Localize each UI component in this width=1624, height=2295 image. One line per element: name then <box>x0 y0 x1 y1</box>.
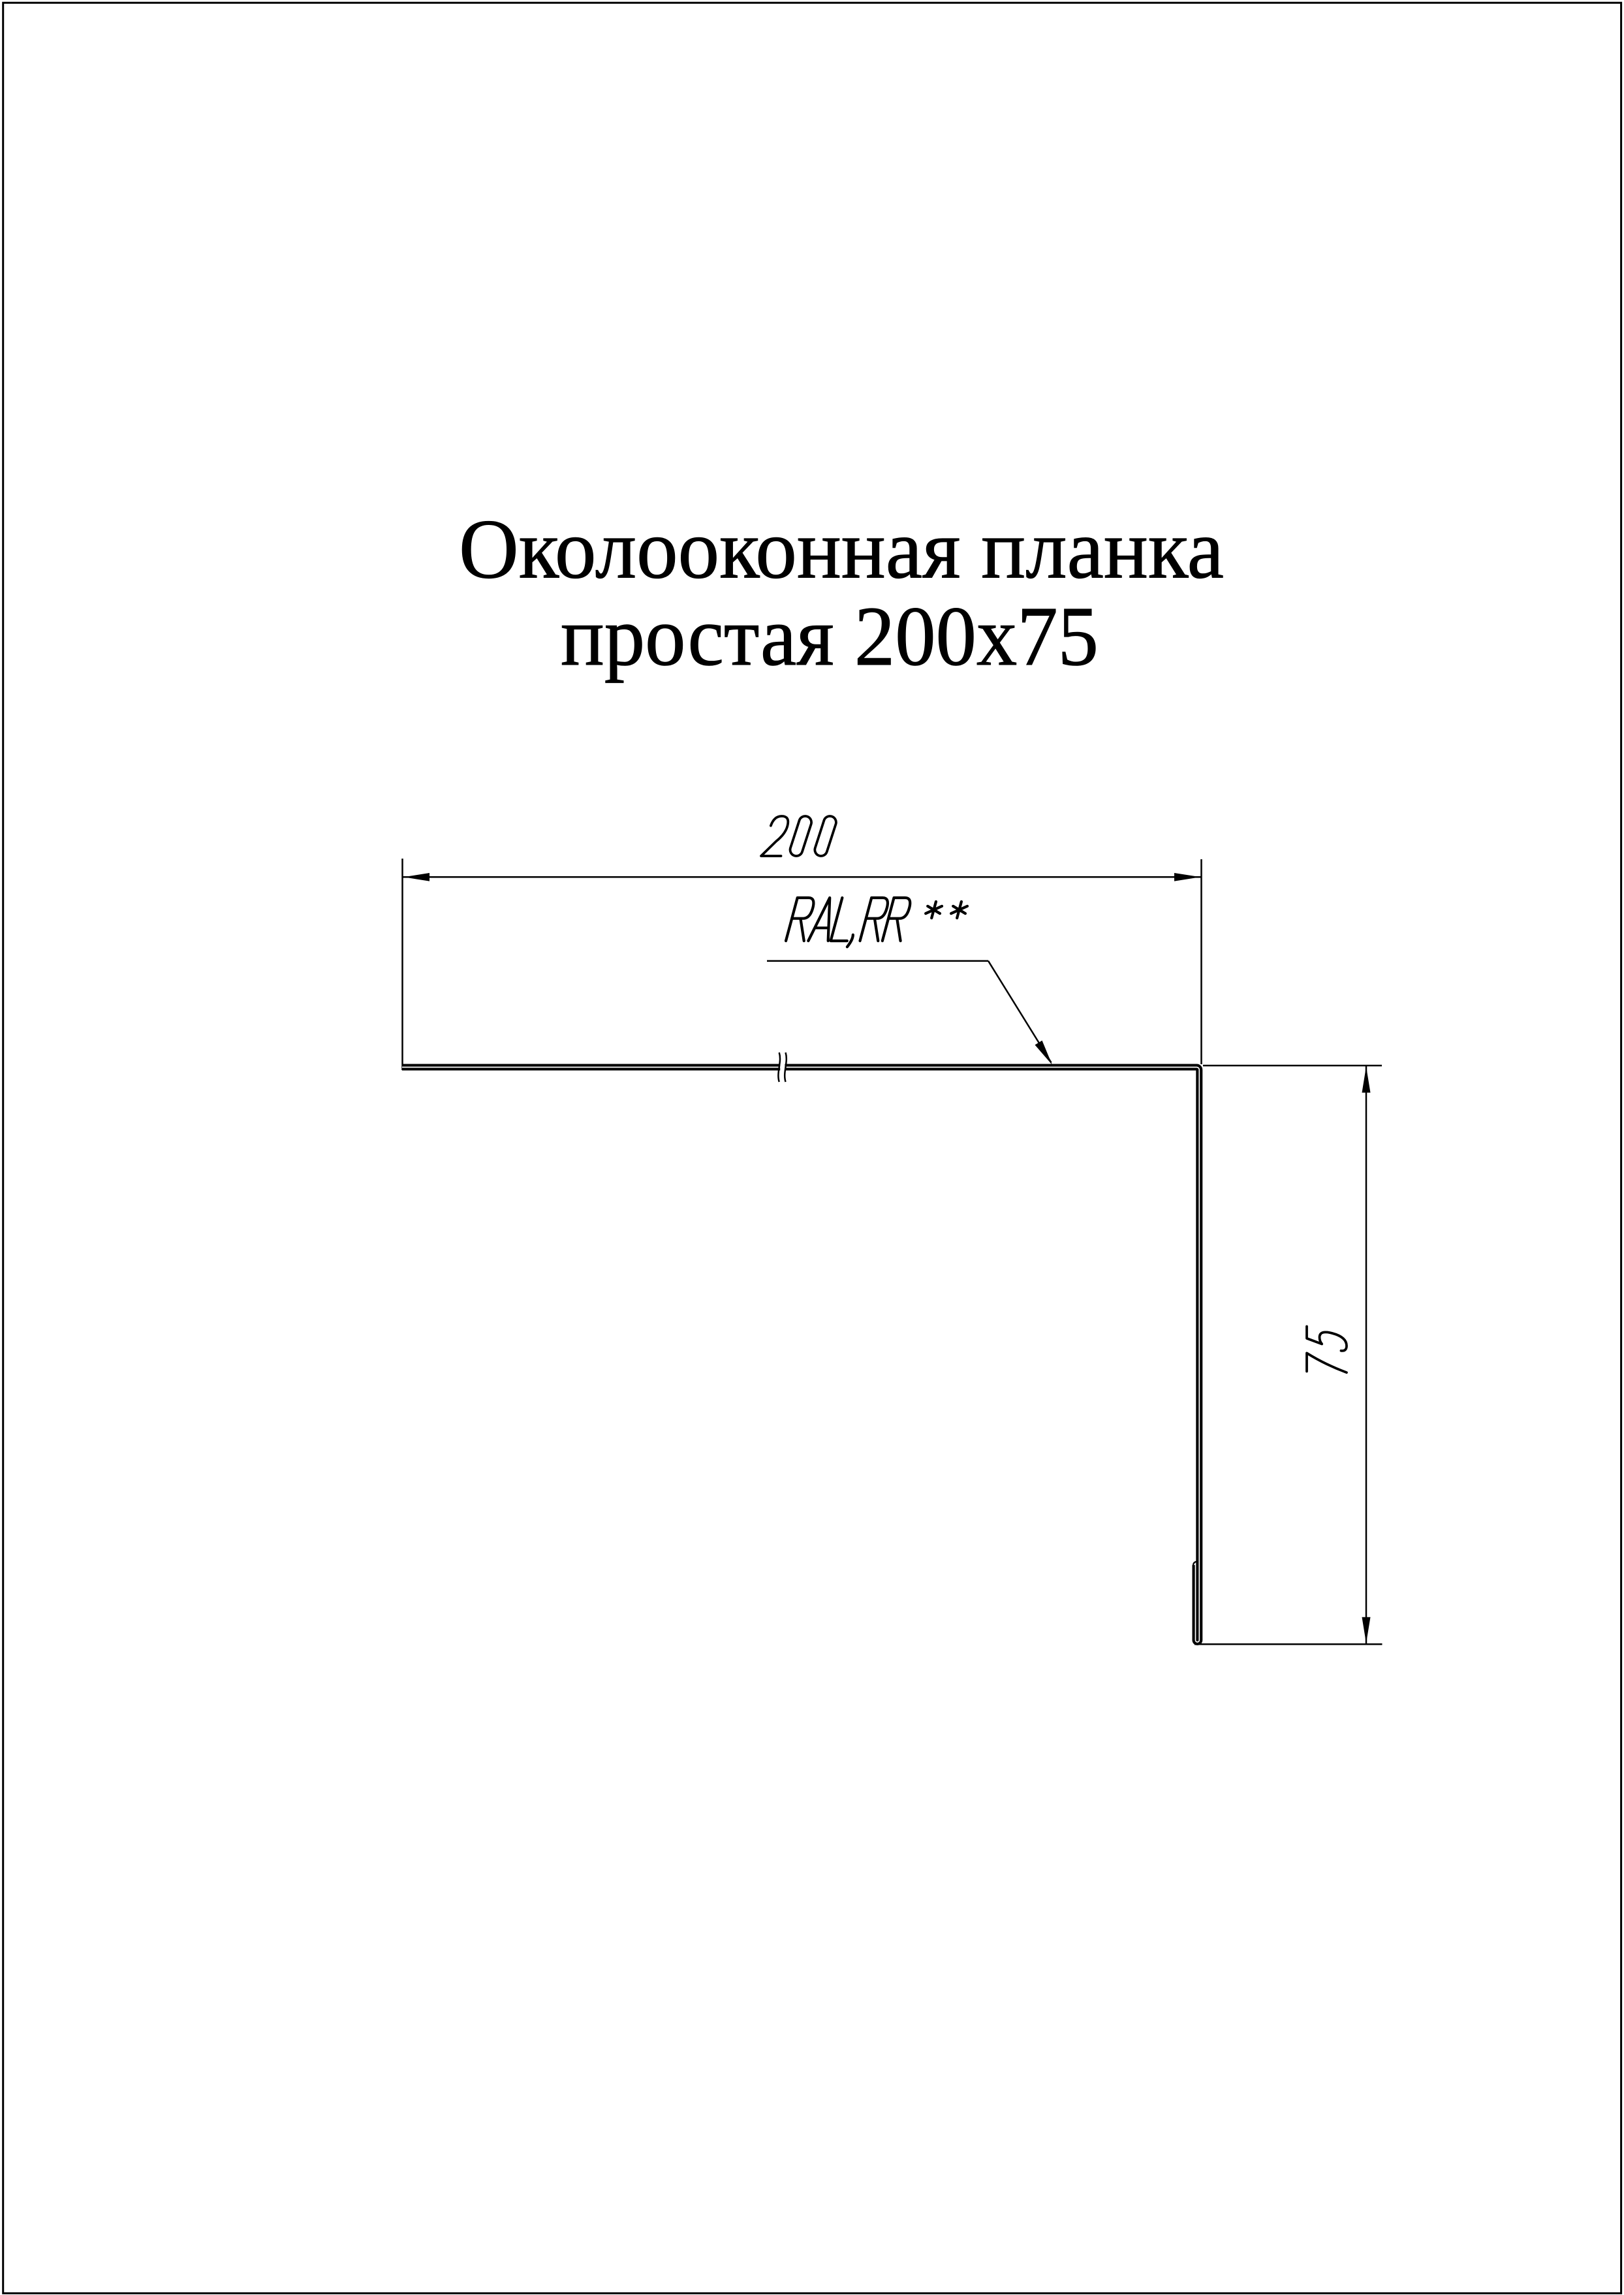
svg-text:простая 200x75: простая 200x75 <box>561 590 1099 684</box>
svg-text:Околооконная планка: Околооконная планка <box>459 503 1224 597</box>
